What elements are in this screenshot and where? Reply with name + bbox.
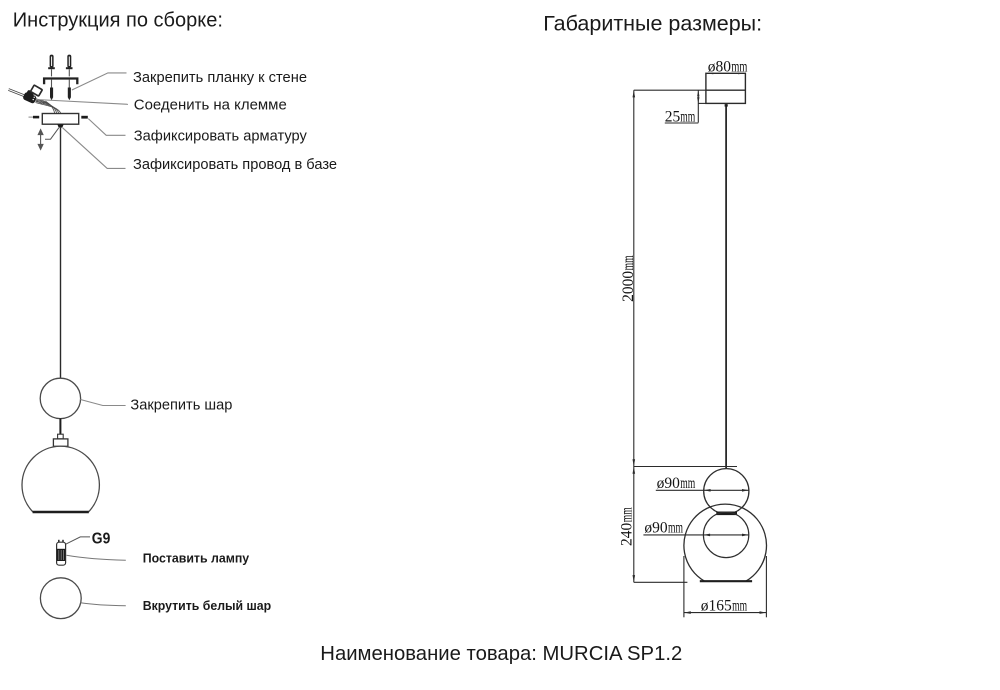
svg-text:mm: mm xyxy=(732,597,747,614)
svg-text:mm: mm xyxy=(619,507,636,522)
svg-text:ø165: ø165 xyxy=(701,597,732,614)
svg-text:Зафиксировать арматуру: Зафиксировать арматуру xyxy=(134,128,307,145)
svg-text:Габаритные размеры:: Габаритные размеры: xyxy=(543,12,762,36)
svg-text:Закрепить шар: Закрепить шар xyxy=(130,397,232,414)
svg-text:Инструкция по сборке:: Инструкция по сборке: xyxy=(13,10,223,32)
svg-text:G9: G9 xyxy=(92,531,111,548)
svg-text:240: 240 xyxy=(619,523,636,547)
svg-text:Закрепить планку к стене: Закрепить планку к стене xyxy=(133,69,307,86)
svg-text:mm: mm xyxy=(668,519,683,536)
svg-text:Соеденить на клемме: Соеденить на клемме xyxy=(134,97,287,114)
svg-text:Поставить лампу: Поставить лампу xyxy=(143,551,250,566)
svg-text:Зафиксировать провод в базе: Зафиксировать провод в базе xyxy=(133,156,337,173)
svg-text:mm: mm xyxy=(620,255,637,270)
svg-text:Наименование товара: MURCIA SP: Наименование товара: MURCIA SP1.2 xyxy=(320,643,682,665)
svg-text:ø90: ø90 xyxy=(657,475,681,492)
svg-text:ø90: ø90 xyxy=(644,519,668,536)
svg-text:2000: 2000 xyxy=(620,271,637,302)
svg-text:mm: mm xyxy=(680,475,695,492)
svg-text:Вкрутить белый шар: Вкрутить белый шар xyxy=(143,598,272,613)
